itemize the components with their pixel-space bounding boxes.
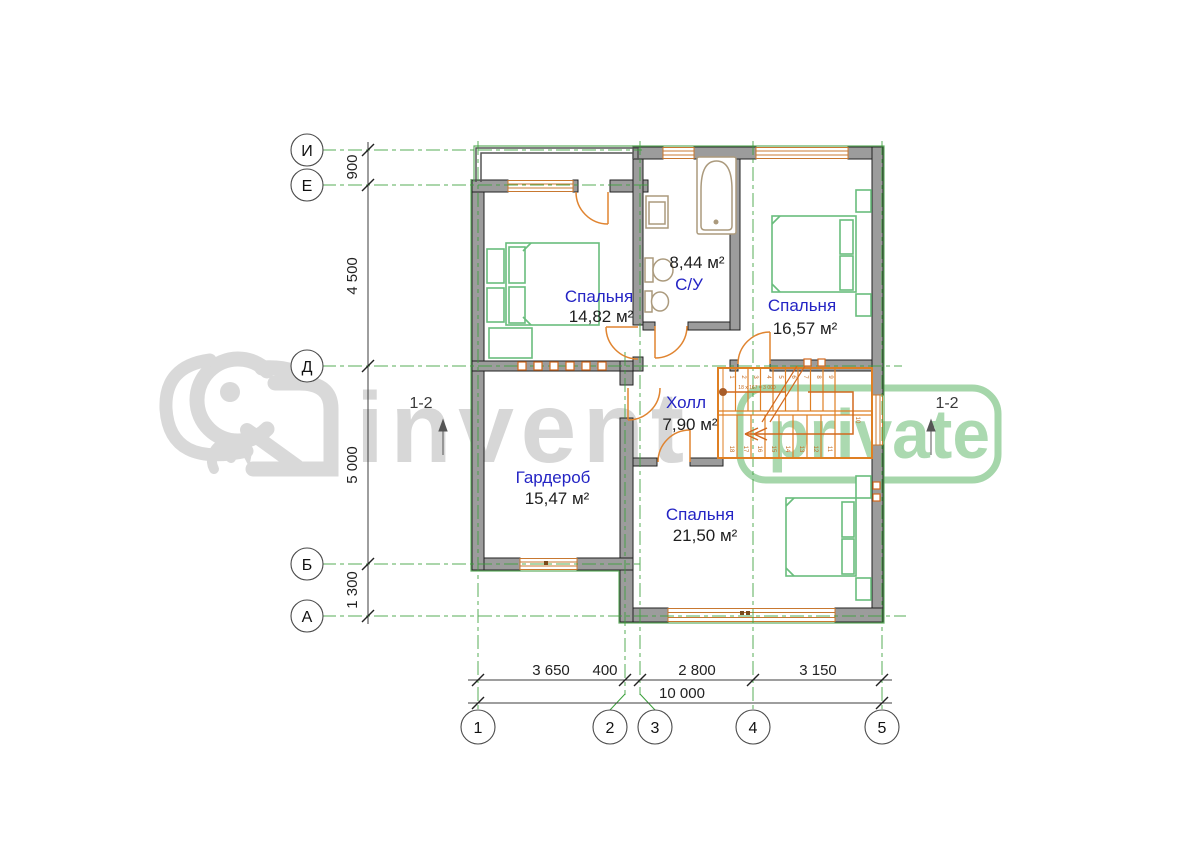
window-top-small (663, 148, 694, 159)
door-balcony (576, 192, 608, 224)
axis-number-3: 3 (651, 720, 660, 737)
bed-bedroom3 (786, 476, 871, 600)
dim-4500: 4 500 (344, 257, 361, 295)
dim-3650: 3 650 (532, 662, 570, 679)
svg-text:1: 1 (728, 375, 734, 379)
dim-5000: 5 000 (344, 446, 361, 484)
section-marker-left: 1-2 (409, 395, 432, 412)
room-wardrobe-area: 15,47 м² (525, 489, 590, 508)
svg-text:10: 10 (854, 417, 860, 424)
door-bathroom (655, 326, 687, 358)
stair-start-post (719, 388, 727, 396)
svg-text:7: 7 (802, 375, 808, 379)
svg-text:15: 15 (770, 446, 776, 453)
window-bedroom1-balcony (508, 181, 573, 192)
bidet-icon (645, 291, 669, 312)
dim-900: 900 (344, 154, 361, 179)
room-bathroom-name: С/У (675, 275, 703, 294)
svg-text:9: 9 (827, 375, 833, 379)
stair-formula: 18 x 167 = 3 000 (738, 385, 776, 391)
svg-text:16: 16 (756, 446, 762, 453)
axis-letter-b: Б (302, 557, 313, 574)
svg-text:12: 12 (812, 446, 818, 453)
axis-number-4: 4 (749, 720, 758, 737)
room-bathroom-area: 8,44 м² (669, 253, 724, 272)
svg-text:14: 14 (784, 446, 790, 453)
svg-text:11: 11 (826, 446, 832, 453)
svg-text:8: 8 (815, 375, 821, 379)
door-bedroom1 (606, 327, 638, 359)
svg-text:13: 13 (798, 446, 804, 453)
axis-number-2: 2 (606, 720, 615, 737)
dim-2800: 2 800 (678, 662, 716, 679)
window-bottom-bedroom3 (668, 609, 835, 622)
room-bedroom3-name: Спальня (666, 505, 734, 524)
axis-letter-d: Д (302, 359, 313, 376)
svg-text:18: 18 (728, 446, 734, 453)
room-wardrobe-name: Гардероб (516, 468, 591, 487)
room-hall-name: Холл (666, 393, 706, 412)
dim-1300: 1 300 (344, 571, 361, 609)
axis-letter-a: А (302, 609, 313, 626)
window-right-stairs (873, 395, 883, 445)
sink-icon (646, 196, 668, 228)
room-bedroom1-area: 14,82 м² (569, 307, 634, 326)
axis-number-1: 1 (474, 720, 483, 737)
balcony-outline (476, 148, 638, 182)
floor-plan-page: invent private (0, 0, 1200, 848)
svg-text:4: 4 (765, 375, 771, 379)
room-hall-area: 7,90 м² (662, 415, 717, 434)
axis-number-5: 5 (878, 720, 887, 737)
svg-text:2: 2 (740, 375, 746, 379)
dim-3150: 3 150 (799, 662, 837, 679)
svg-text:6: 6 (790, 375, 796, 379)
section-marker-right: 1-2 (935, 395, 958, 412)
room-bedroom2-area: 16,57 м² (773, 319, 838, 338)
room-bedroom1-name: Спальня (565, 287, 633, 306)
door-bedroom2 (738, 332, 770, 364)
dim-total-10000: 10 000 (659, 685, 705, 702)
axis-leaders (610, 694, 655, 710)
bathtub-icon (697, 157, 736, 234)
axis-letter-e: Е (302, 178, 313, 195)
dim-400: 400 (592, 662, 617, 679)
axis-letter-i: И (301, 143, 313, 160)
room-bedroom3-area: 21,50 м² (673, 526, 738, 545)
svg-text:5: 5 (777, 375, 783, 379)
svg-text:17: 17 (742, 446, 748, 453)
room-bedroom2-name: Спальня (768, 296, 836, 315)
window-top-large (756, 148, 848, 159)
